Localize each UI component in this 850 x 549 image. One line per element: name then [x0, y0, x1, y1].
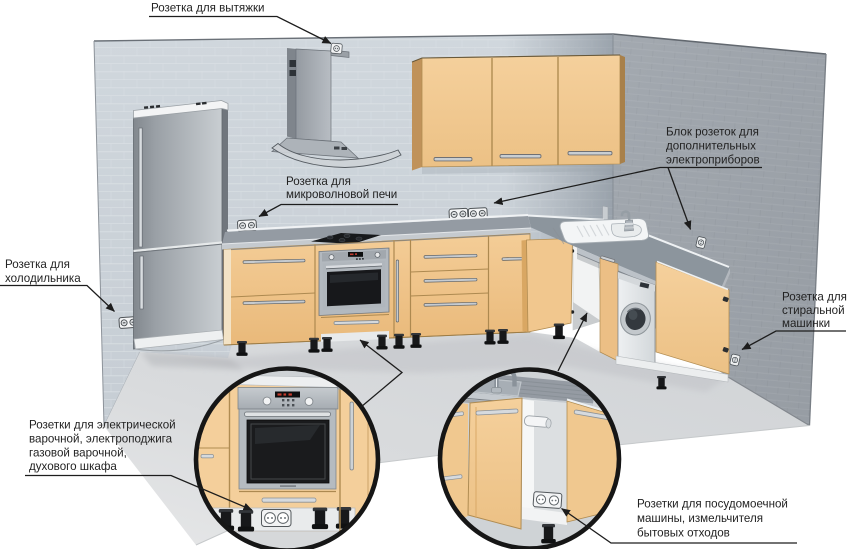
svg-text:холодильника: холодильника — [5, 272, 81, 285]
svg-text:Розетка для: Розетка для — [5, 258, 70, 271]
svg-text:машинки: машинки — [782, 317, 830, 330]
svg-text:Розетка для: Розетка для — [286, 175, 351, 188]
svg-text:Розетки для электрической: Розетки для электрической — [29, 419, 176, 432]
svg-text:машины, измельчителя: машины, измельчителя — [637, 512, 763, 525]
svg-text:бытовых отходов: бытовых отходов — [637, 527, 730, 540]
svg-text:Розетки для посудомоечной: Розетки для посудомоечной — [637, 498, 788, 511]
svg-text:стиральной: стиральной — [782, 304, 845, 317]
svg-text:варочной, электроподжига: варочной, электроподжига — [29, 433, 173, 446]
svg-text:микроволновой печи: микроволновой печи — [286, 188, 397, 201]
svg-text:дополнительных: дополнительных — [666, 140, 756, 153]
svg-text:Розетка для вытяжки: Розетка для вытяжки — [151, 2, 265, 15]
svg-text:Розетка для: Розетка для — [782, 291, 847, 304]
svg-text:духового шкафа: духового шкафа — [29, 460, 117, 473]
svg-text:Блок розеток для: Блок розеток для — [666, 126, 759, 139]
svg-text:электроприборов: электроприборов — [666, 154, 760, 167]
svg-text:газовой варочной,: газовой варочной, — [29, 447, 127, 460]
